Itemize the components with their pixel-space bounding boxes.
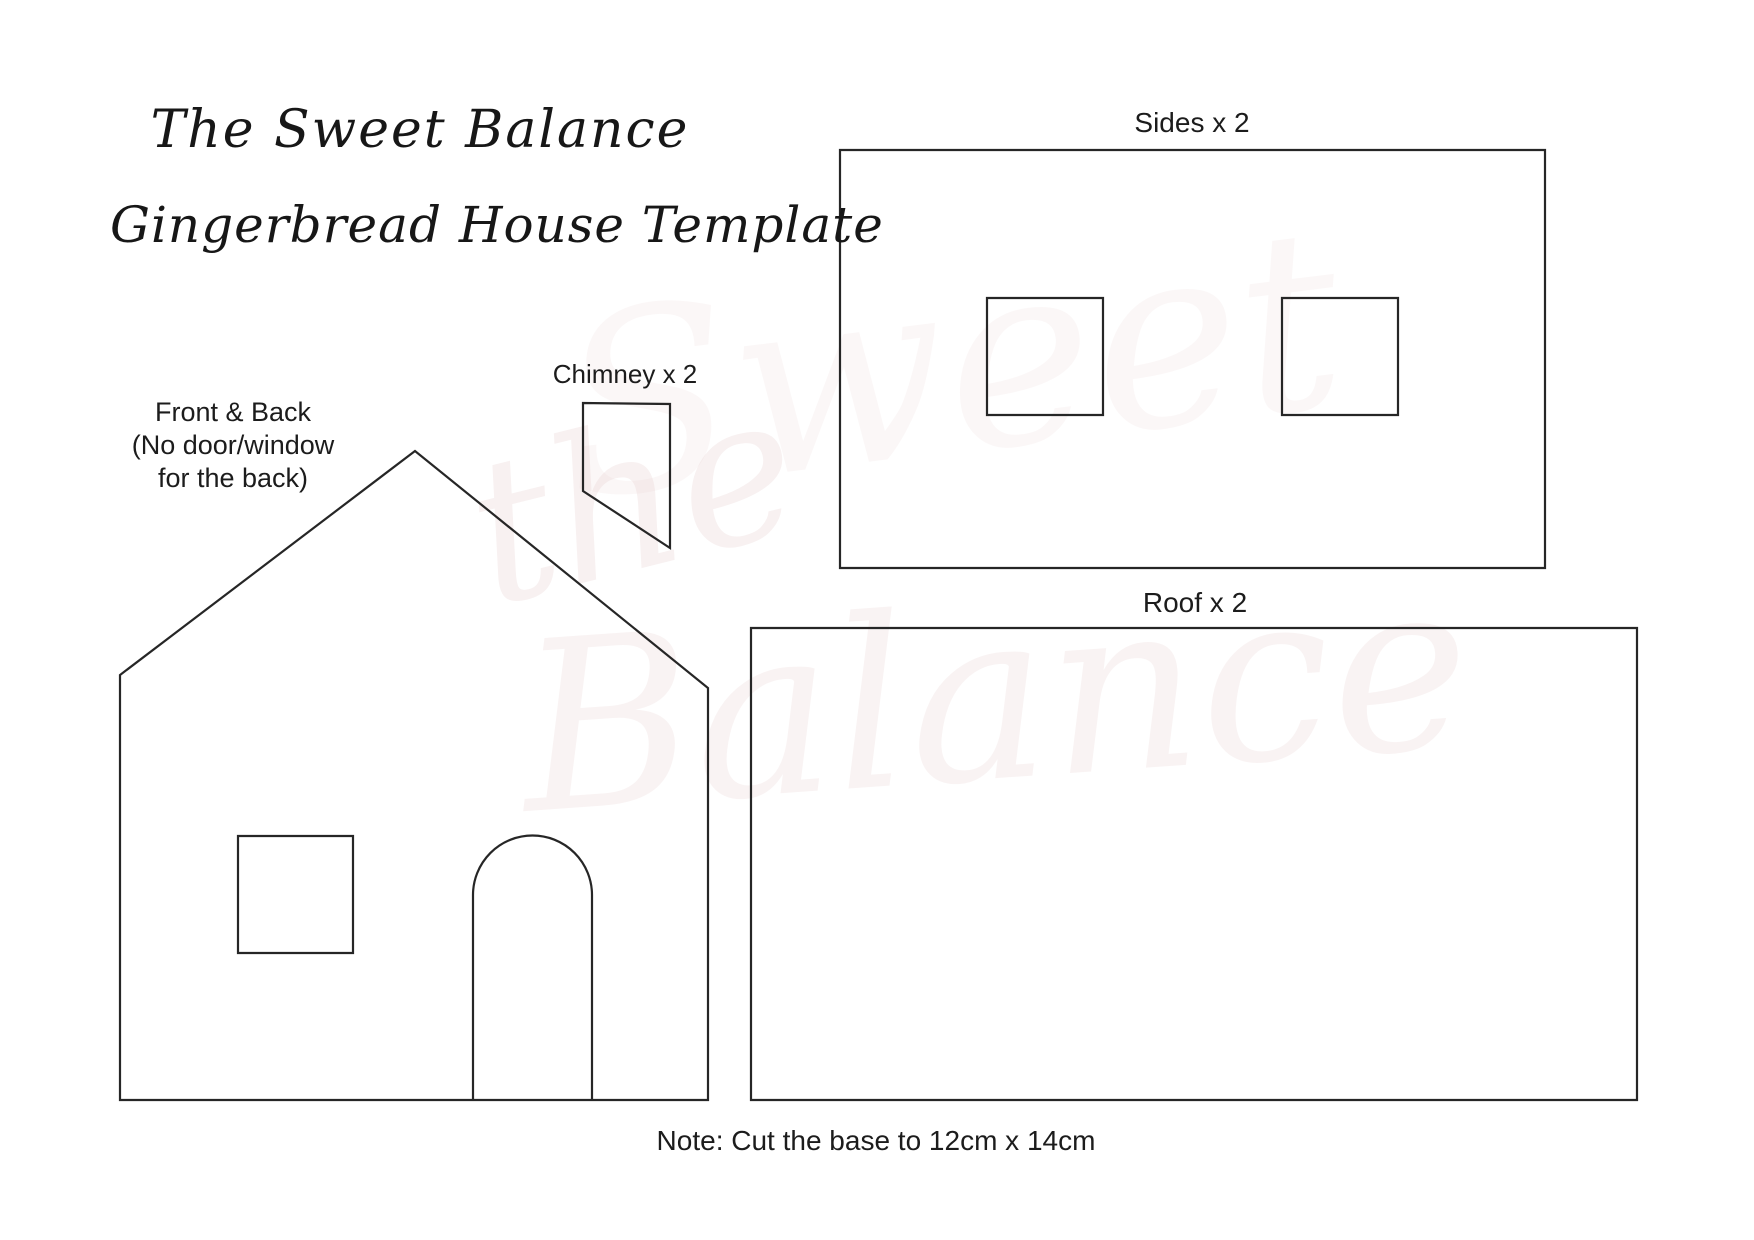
template-drawing xyxy=(0,0,1754,1240)
gingerbread-template-page: the Sweet Balance The Sweet Balance Ging… xyxy=(0,0,1754,1240)
front-back-label: Front & Back (No door/window for the bac… xyxy=(73,396,393,495)
base-note: Note: Cut the base to 12cm x 14cm xyxy=(576,1124,1176,1157)
chimney-shape xyxy=(583,403,670,548)
chimney-label: Chimney x 2 xyxy=(515,358,735,391)
sides-window-left xyxy=(987,298,1103,415)
brand-title: The Sweet Balance xyxy=(140,100,700,160)
sides-window-right xyxy=(1282,298,1398,415)
sides-label: Sides x 2 xyxy=(1042,106,1342,139)
sides-outline xyxy=(840,150,1545,568)
page-title: Gingerbread House Template xyxy=(110,196,730,254)
roof-outline xyxy=(751,628,1637,1100)
front-back-outline xyxy=(120,451,708,1100)
front-back-window xyxy=(238,836,353,953)
front-back-door xyxy=(473,836,592,1100)
roof-label: Roof x 2 xyxy=(1045,586,1345,619)
